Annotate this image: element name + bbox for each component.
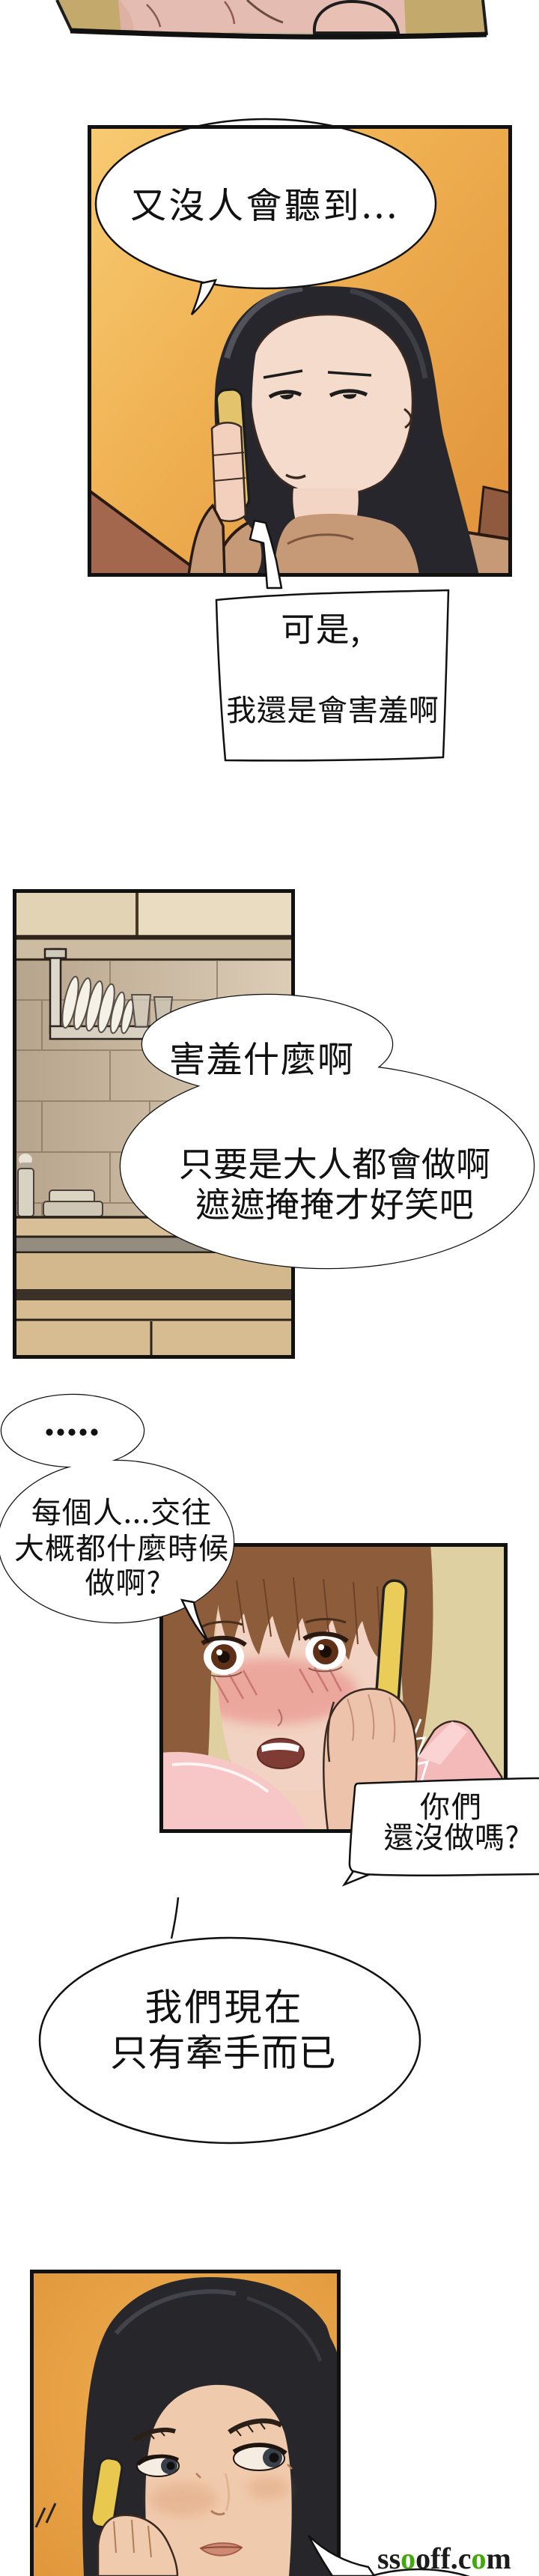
svg-text:ssooff.com: ssooff.com [377,2542,511,2575]
